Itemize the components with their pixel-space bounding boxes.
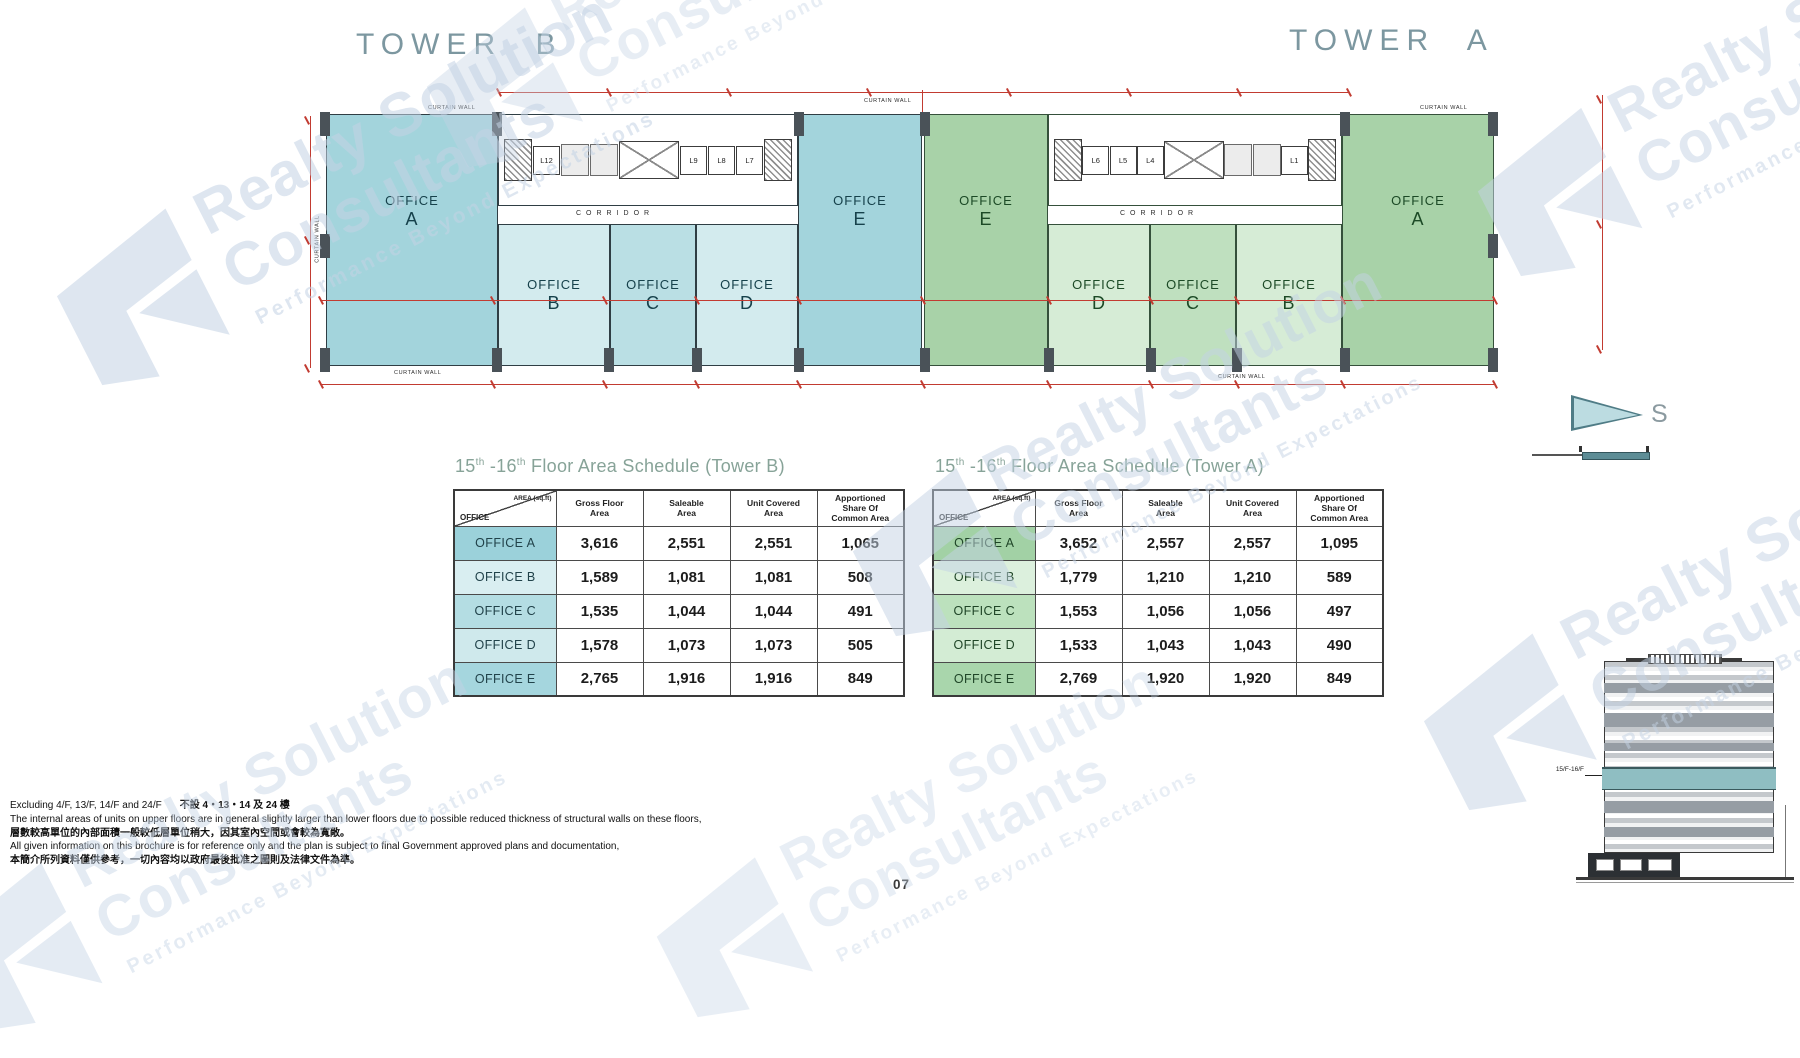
office-row-label: OFFICE E	[933, 662, 1035, 696]
area-value: 1,073	[730, 628, 817, 662]
floor-plan: OFFICEA OFFICEB OFFICEC OFFICED OFFICEE …	[308, 86, 1504, 396]
footnote-text-cn: 本簡介所列資料僅供參考，一切內容均以政府最後批准之圖則及法律文件為準。	[10, 855, 360, 866]
column-header: Unit Covered Area	[1209, 490, 1296, 526]
washroom-icon	[561, 144, 589, 176]
dimension-line	[498, 92, 1348, 93]
lift-box: L6	[1082, 146, 1109, 175]
footnote-text-en: All given information on this brochure i…	[10, 841, 619, 852]
tower-b-office-c-block: OFFICEC	[610, 224, 696, 366]
office-row-label: OFFICE E	[454, 662, 556, 696]
area-value: 1,043	[1122, 628, 1209, 662]
dimension-tick	[304, 364, 310, 373]
lift-box: L9	[680, 146, 707, 175]
curtain-wall-label: CURTAIN WALL	[1420, 105, 1467, 111]
table-row: OFFICE C1,5351,0441,044491	[454, 594, 904, 628]
curtain-wall-label: CURTAIN WALL	[864, 98, 911, 104]
watermark-logo-icon	[31, 197, 243, 409]
table-row: OFFICE D1,5781,0731,073505	[454, 628, 904, 662]
structural-column	[604, 348, 614, 372]
stair-icon	[1308, 139, 1336, 181]
column-header: Apportioned Share Of Common Area	[817, 490, 904, 526]
office-label: OFFICEA	[385, 193, 439, 230]
scale-tick	[1579, 446, 1582, 452]
tower-b-office-a-block: OFFICEA	[326, 114, 498, 366]
area-value: 1,535	[556, 594, 643, 628]
elevation-band	[1604, 801, 1774, 813]
area-value: 1,043	[1209, 628, 1296, 662]
footnote-text-cn: 層數較高單位的內部面積一般較低層單位稍大，因其室內空間或會較為寬敞。	[10, 828, 350, 839]
lift-lobby-icon	[619, 141, 679, 179]
watermark-logo-icon	[0, 852, 115, 1054]
office-row-label: OFFICE C	[454, 594, 556, 628]
column-header: Unit Covered Area	[730, 490, 817, 526]
elevation-dim-line	[1785, 805, 1786, 877]
structural-column	[1340, 112, 1350, 136]
lift-box: L1	[1281, 146, 1308, 175]
area-value: 3,652	[1035, 526, 1122, 560]
footnote-line: 層數較高單位的內部面積一般較低層單位稍大，因其室內空間或會較為寬敞。	[10, 827, 1070, 841]
area-value: 2,551	[730, 526, 817, 560]
dimension-line	[310, 116, 311, 368]
dimension-tick	[1596, 95, 1602, 104]
column-header: Apportioned Share Of Common Area	[1296, 490, 1383, 526]
tower-a-office-c-block: OFFICEC	[1150, 224, 1236, 366]
area-value: 1,920	[1209, 662, 1296, 696]
footnote-text-cn: 不設 4・13・14 及 24 樓	[180, 800, 290, 811]
elevation-band	[1604, 827, 1774, 837]
area-value: 849	[1296, 662, 1383, 696]
dimension-line	[320, 300, 1494, 301]
compass-icon	[1574, 398, 1638, 428]
office-row-label: OFFICE C	[933, 594, 1035, 628]
area-value: 1,916	[730, 662, 817, 696]
watermark-line2: Consultants	[1626, 0, 1800, 197]
watermark-logo-icon	[633, 847, 825, 1039]
watermark-tagline: Performance Beyond Expectations	[1664, 8, 1800, 224]
area-value: 1,920	[1122, 662, 1209, 696]
table-row: OFFICE A3,6522,5572,5571,095	[933, 526, 1383, 560]
area-value: 1,081	[730, 560, 817, 594]
area-value: 1,553	[1035, 594, 1122, 628]
office-label: OFFICEC	[626, 277, 680, 314]
structural-column	[1146, 348, 1156, 372]
footnote-text-en: The internal areas of units on upper flo…	[10, 814, 701, 825]
structural-column	[1488, 112, 1498, 136]
watermark-logo-icon	[1398, 622, 1610, 834]
ground-line	[1576, 877, 1794, 880]
area-value: 1,081	[643, 560, 730, 594]
area-value: 497	[1296, 594, 1383, 628]
lift-box: L7	[736, 146, 763, 175]
podium-window	[1596, 859, 1614, 871]
corner-area-label: AREA (sq.ft)	[513, 494, 551, 504]
podium-window	[1620, 859, 1642, 871]
tower-a-office-a-block: OFFICEA	[1342, 114, 1494, 366]
curtain-wall-label: CURTAIN WALL	[1218, 374, 1265, 380]
area-value: 1,044	[730, 594, 817, 628]
area-schedule-table-tower-A: AREA (sq.ft)OFFICEGross Floor AreaSaleab…	[932, 489, 1384, 697]
area-value: 1,073	[643, 628, 730, 662]
tower-a-office-e-block: OFFICEE	[924, 114, 1048, 366]
elevation-band	[1604, 713, 1774, 727]
area-schedule-tower-b: AREA (sq.ft)OFFICEGross Floor AreaSaleab…	[453, 489, 905, 697]
tower-b-office-b-block: OFFICEB	[498, 224, 610, 366]
scale-tick	[1646, 446, 1649, 452]
area-value: 849	[817, 662, 904, 696]
watermark-line2: Consultants	[568, 0, 964, 92]
structural-column	[1044, 348, 1054, 372]
table-row: OFFICE E2,7691,9201,920849	[933, 662, 1383, 696]
area-value: 2,769	[1035, 662, 1122, 696]
table-corner-cell: AREA (sq.ft)OFFICE	[933, 490, 1035, 526]
office-row-label: OFFICE D	[933, 628, 1035, 662]
office-label: OFFICEA	[1391, 193, 1445, 230]
structural-column	[920, 348, 930, 372]
area-value: 589	[1296, 560, 1383, 594]
structural-column	[320, 112, 330, 136]
office-label: OFFICED	[1072, 277, 1126, 314]
office-row-label: OFFICE B	[454, 560, 556, 594]
compass-south-label: S	[1651, 400, 1668, 429]
tower-a-office-b-block: OFFICEB	[1236, 224, 1342, 366]
schedule-title-tower-a: 15th -16th Floor Area Schedule (Tower A)	[935, 456, 1264, 477]
area-value: 1,589	[556, 560, 643, 594]
footnote-line: All given information on this brochure i…	[10, 840, 1070, 854]
watermark-line1: Realty Solution	[1551, 407, 1800, 672]
elevation-band	[1604, 683, 1774, 693]
footnotes: Excluding 4/F, 13/F, 14/F and 24/F不設 4・1…	[10, 799, 1070, 868]
schedule-title-tower-b: 15th -16th Floor Area Schedule (Tower B)	[455, 456, 785, 477]
dimension-line	[1602, 95, 1603, 350]
watermark-text: Realty SolutionConsultantsPerformance Be…	[1599, 0, 1800, 227]
lift-lobby-icon	[1164, 141, 1224, 179]
table-corner-cell: AREA (sq.ft)OFFICE	[454, 490, 556, 526]
structural-column	[1488, 348, 1498, 372]
area-value: 1,056	[1122, 594, 1209, 628]
tower-a-title: TOWER A	[1289, 24, 1494, 58]
ground-line	[1576, 882, 1794, 883]
area-value: 1,044	[643, 594, 730, 628]
table-row: OFFICE E2,7651,9161,916849	[454, 662, 904, 696]
area-value: 2,551	[643, 526, 730, 560]
page-number: 07	[893, 877, 910, 892]
lift-box: L8	[708, 146, 735, 175]
tower-a-corridor-label: CORRIDOR	[1120, 210, 1198, 217]
area-value: 2,557	[1209, 526, 1296, 560]
office-label: OFFICEC	[1166, 277, 1220, 314]
area-value: 3,616	[556, 526, 643, 560]
area-value: 490	[1296, 628, 1383, 662]
lift-box: L4	[1137, 146, 1164, 175]
tower-a-office-d-block: OFFICED	[1048, 224, 1150, 366]
floor-band-label: 15/F-16/F	[1538, 766, 1584, 773]
area-value: 1,095	[1296, 526, 1383, 560]
tower-b-office-e-block: OFFICEE	[798, 114, 922, 366]
watermark-line1: Realty Solution	[542, 0, 938, 41]
watermark-line1: Realty Solution	[1599, 0, 1800, 144]
area-schedule-table-tower-B: AREA (sq.ft)OFFICEGross Floor AreaSaleab…	[453, 489, 905, 697]
lift-box: L12	[533, 146, 560, 175]
area-schedule-tower-a: AREA (sq.ft)OFFICEGross Floor AreaSaleab…	[932, 489, 1384, 697]
footnote-line: The internal areas of units on upper flo…	[10, 813, 1070, 827]
stair-icon	[1054, 139, 1082, 181]
scale-bar-fill	[1582, 452, 1650, 460]
area-value: 1,916	[643, 662, 730, 696]
podium	[1588, 853, 1680, 877]
dimension-tick	[1596, 220, 1602, 229]
office-label: OFFICED	[720, 277, 774, 314]
area-value: 2,765	[556, 662, 643, 696]
structural-column	[320, 348, 330, 372]
area-value: 1,065	[817, 526, 904, 560]
structural-column	[920, 112, 930, 136]
office-row-label: OFFICE A	[454, 526, 556, 560]
table-row: OFFICE B1,7791,2101,210589	[933, 560, 1383, 594]
brochure-page: { "page": { "number": "07" }, "watermark…	[0, 0, 1800, 908]
office-label: OFFICEE	[833, 193, 887, 230]
area-value: 508	[817, 560, 904, 594]
structural-column	[492, 348, 502, 372]
column-header: Gross Floor Area	[1035, 490, 1122, 526]
stair-icon	[764, 139, 792, 181]
watermark-tagline: Performance Beyond Expectations	[124, 763, 519, 979]
footnote-line: Excluding 4/F, 13/F, 14/F and 24/F不設 4・1…	[10, 799, 1070, 813]
structural-column	[794, 348, 804, 372]
lift-box: L5	[1110, 146, 1137, 175]
building-elevation: 15/F-16/F	[1588, 655, 1798, 887]
office-row-label: OFFICE B	[933, 560, 1035, 594]
watermark: Realty SolutionConsultantsPerformance Be…	[1455, 20, 1800, 173]
structural-column	[320, 234, 330, 258]
curtain-wall-label: CURTAIN WALL	[315, 215, 321, 262]
tower-b-corridor-label: CORRIDOR	[576, 210, 654, 217]
area-value: 1,578	[556, 628, 643, 662]
washroom-icon	[590, 144, 618, 176]
area-value: 2,557	[1122, 526, 1209, 560]
podium-window	[1648, 859, 1672, 871]
tower-b-title: TOWER B	[356, 28, 562, 62]
dimension-line	[922, 90, 923, 112]
dimension-line	[320, 384, 1494, 385]
highlighted-floors-band	[1602, 767, 1776, 790]
table-row: OFFICE A3,6162,5512,5511,065	[454, 526, 904, 560]
office-row-label: OFFICE D	[454, 628, 556, 662]
column-header: Saleable Area	[1122, 490, 1209, 526]
office-row-label: OFFICE A	[933, 526, 1035, 560]
area-value: 491	[817, 594, 904, 628]
scale-bar-line	[1532, 454, 1582, 456]
structural-column	[1340, 348, 1350, 372]
washroom-icon	[1253, 144, 1281, 176]
roof-crenellation	[1648, 654, 1722, 664]
floor-band-arrow	[1585, 775, 1602, 776]
structural-column	[492, 112, 502, 136]
column-header: Gross Floor Area	[556, 490, 643, 526]
washroom-icon	[1224, 144, 1252, 176]
corner-office-label: OFFICE	[460, 513, 489, 523]
footnote-line: 本簡介所列資料僅供參考，一切內容均以政府最後批准之圖則及法律文件為準。	[10, 854, 1070, 868]
office-label: OFFICEB	[1262, 277, 1316, 314]
tower-a-core: L6 L5 L4 L1	[1048, 114, 1342, 206]
dimension-tick	[304, 236, 310, 245]
structural-column	[1232, 348, 1242, 372]
curtain-wall-label: CURTAIN WALL	[394, 370, 441, 376]
elevation-band	[1604, 743, 1774, 751]
dimension-tick	[304, 116, 310, 125]
structural-column	[1488, 234, 1498, 258]
column-header: Saleable Area	[643, 490, 730, 526]
corner-area-label: AREA (sq.ft)	[992, 494, 1030, 504]
area-value: 1,210	[1209, 560, 1296, 594]
tower-b-core: L12 L9 L8 L7	[498, 114, 798, 206]
table-row: OFFICE D1,5331,0431,043490	[933, 628, 1383, 662]
office-label: OFFICEB	[527, 277, 581, 314]
office-label: OFFICEE	[959, 193, 1013, 230]
curtain-wall-label: CURTAIN WALL	[428, 105, 475, 111]
scale-bar	[1532, 448, 1652, 460]
stair-icon	[504, 139, 532, 181]
watermark-inner: Realty SolutionConsultantsPerformance Be…	[1453, 0, 1800, 301]
corner-office-label: OFFICE	[939, 513, 968, 523]
area-value: 505	[817, 628, 904, 662]
area-value: 1,210	[1122, 560, 1209, 594]
area-value: 1,056	[1209, 594, 1296, 628]
footnote-text-en: Excluding 4/F, 13/F, 14/F and 24/F	[10, 800, 162, 811]
table-row: OFFICE B1,5891,0811,081508	[454, 560, 904, 594]
area-value: 1,533	[1035, 628, 1122, 662]
dimension-tick	[1596, 345, 1602, 354]
table-row: OFFICE C1,5531,0561,056497	[933, 594, 1383, 628]
structural-column	[794, 112, 804, 136]
tower-b-office-d-block: OFFICED	[696, 224, 798, 366]
structural-column	[692, 348, 702, 372]
area-value: 1,779	[1035, 560, 1122, 594]
